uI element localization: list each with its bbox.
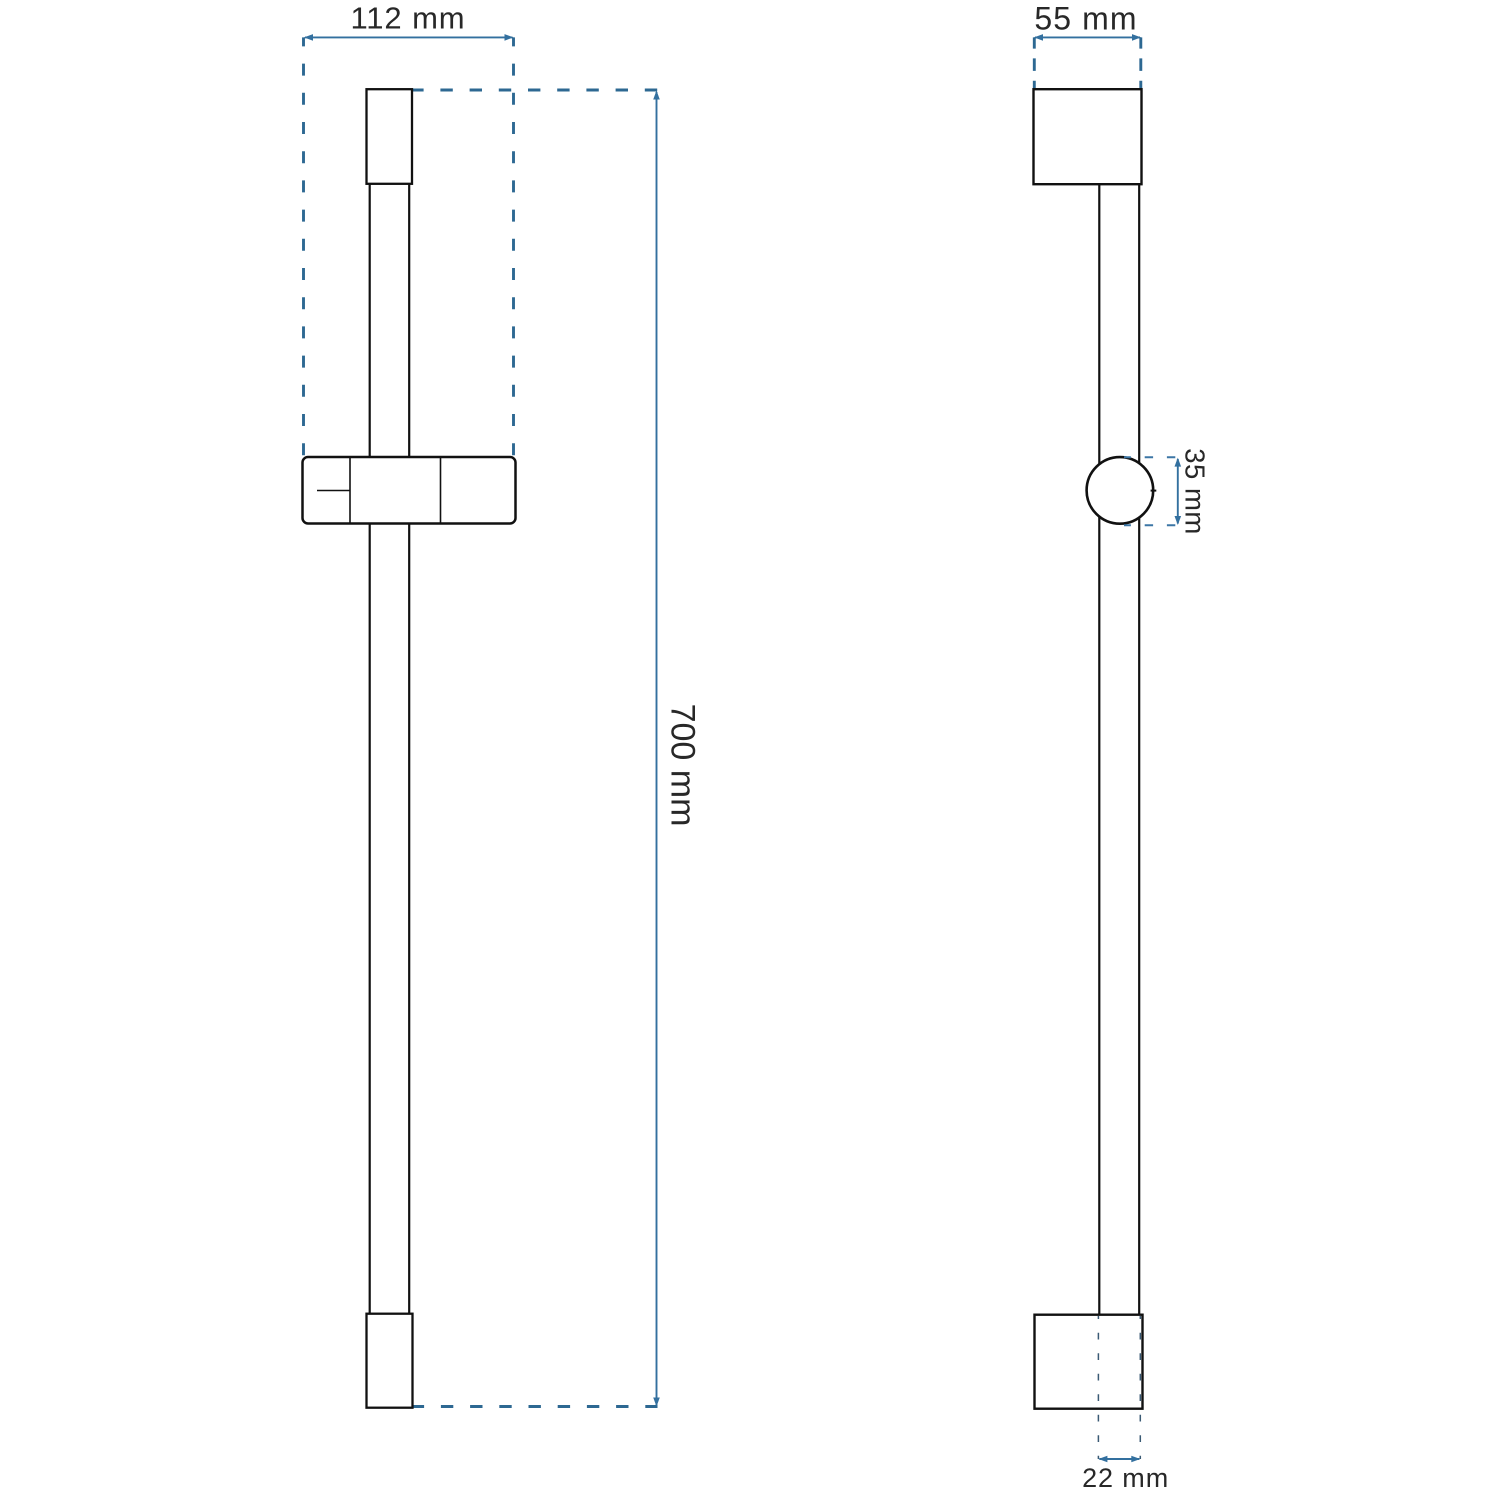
svg-text:22 mm: 22 mm bbox=[1082, 1463, 1169, 1493]
svg-text:112 mm: 112 mm bbox=[350, 1, 465, 36]
svg-text:700 mm: 700 mm bbox=[664, 704, 702, 827]
svg-text:35 mm: 35 mm bbox=[1179, 448, 1210, 535]
svg-text:55 mm: 55 mm bbox=[1034, 1, 1137, 37]
